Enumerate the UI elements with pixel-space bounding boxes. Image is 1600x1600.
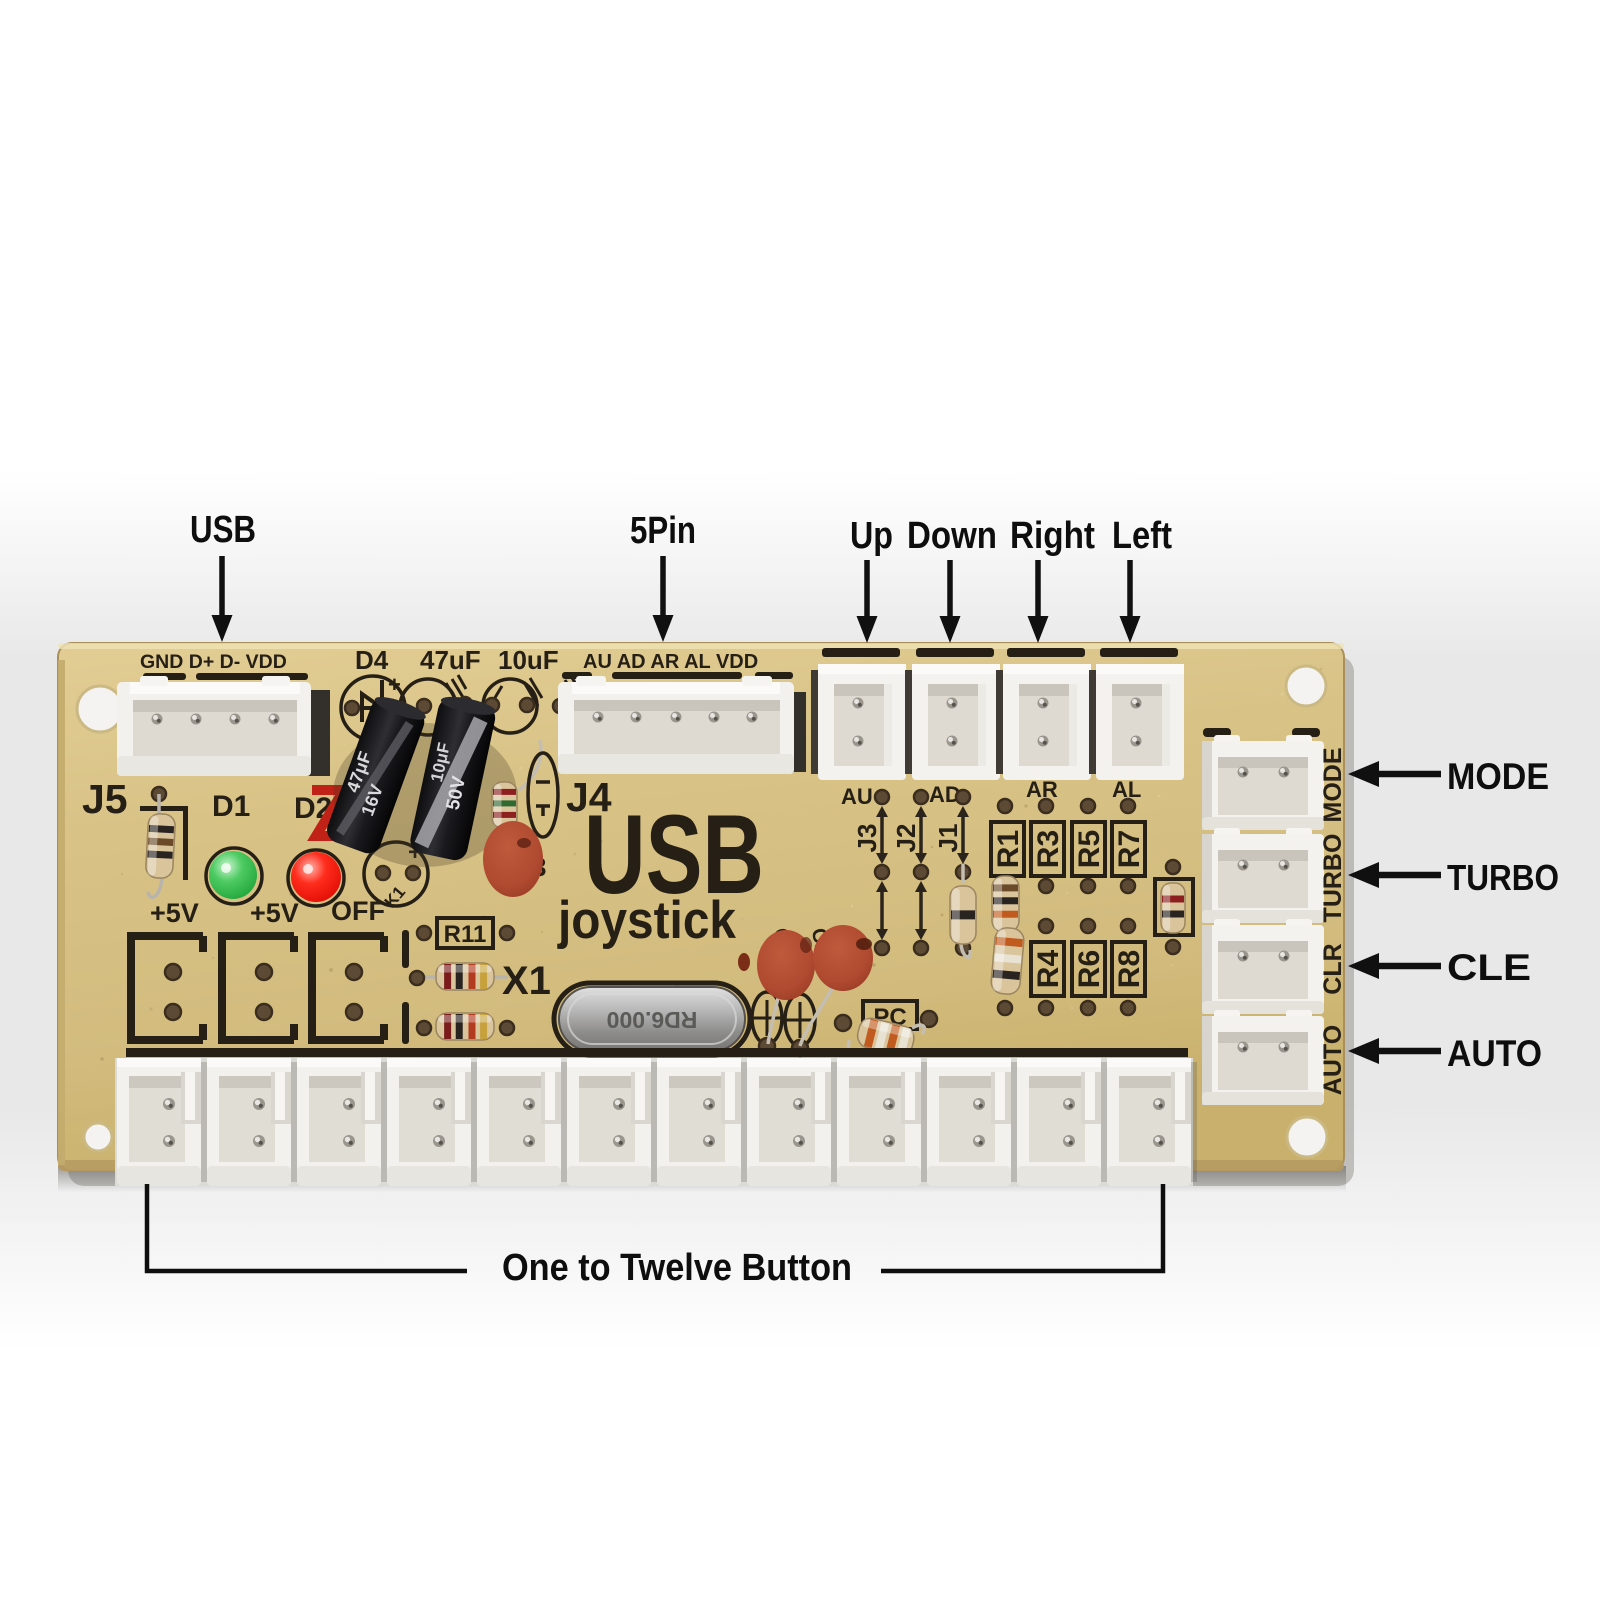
svg-text:+5V: +5V [250, 898, 299, 928]
svg-text:J2: J2 [891, 824, 921, 853]
svg-text:AU: AU [841, 784, 873, 809]
svg-text:R1: R1 [992, 830, 1025, 868]
svg-text:CLR: CLR [1319, 943, 1347, 994]
svg-text:47uF: 47uF [420, 645, 481, 675]
svg-text:RD6.000: RD6.000 [607, 1007, 698, 1033]
svg-text:GND D+ D- VDD: GND D+ D- VDD [140, 651, 287, 673]
svg-text:AR: AR [1026, 777, 1058, 802]
svg-text:5Pin: 5Pin [630, 510, 696, 552]
svg-text:Down: Down [907, 515, 997, 557]
svg-text:J3: J3 [852, 824, 882, 853]
svg-text:+5V: +5V [150, 898, 199, 928]
svg-text:R6: R6 [1073, 950, 1106, 988]
svg-text:TURBO: TURBO [1447, 857, 1559, 898]
svg-text:OFF: OFF [331, 896, 385, 926]
svg-text:MODE: MODE [1319, 748, 1347, 823]
svg-text:R5: R5 [1073, 830, 1106, 868]
svg-text:One to Twelve Button: One to Twelve Button [502, 1247, 852, 1289]
svg-text:AUTO: AUTO [1319, 1025, 1347, 1095]
svg-text:R8: R8 [1113, 950, 1146, 988]
svg-text:R7: R7 [1113, 830, 1146, 868]
svg-text:J1: J1 [933, 824, 963, 853]
svg-text:10uF: 10uF [498, 645, 559, 675]
svg-text:Left: Left [1112, 515, 1172, 557]
svg-text:R4: R4 [1032, 950, 1065, 989]
svg-text:TURBO: TURBO [1319, 834, 1347, 923]
svg-text:R3: R3 [1032, 830, 1065, 868]
svg-text:CLE: CLE [1447, 947, 1531, 988]
svg-text:+: + [388, 672, 401, 697]
svg-text:D1: D1 [212, 790, 250, 823]
svg-text:X1: X1 [502, 959, 551, 1003]
svg-text:D4: D4 [355, 645, 389, 675]
svg-text:MODE: MODE [1447, 756, 1549, 797]
svg-text:R11: R11 [444, 921, 487, 948]
svg-text:joystick: joystick [557, 891, 736, 950]
svg-text:AUTO: AUTO [1447, 1033, 1542, 1074]
svg-text:Right: Right [1010, 515, 1095, 557]
svg-text:Up: Up [850, 515, 893, 557]
svg-text:AU AD AR AL VDD: AU AD AR AL VDD [583, 651, 758, 673]
svg-text:J5: J5 [82, 776, 128, 822]
svg-text:USB: USB [190, 509, 256, 551]
